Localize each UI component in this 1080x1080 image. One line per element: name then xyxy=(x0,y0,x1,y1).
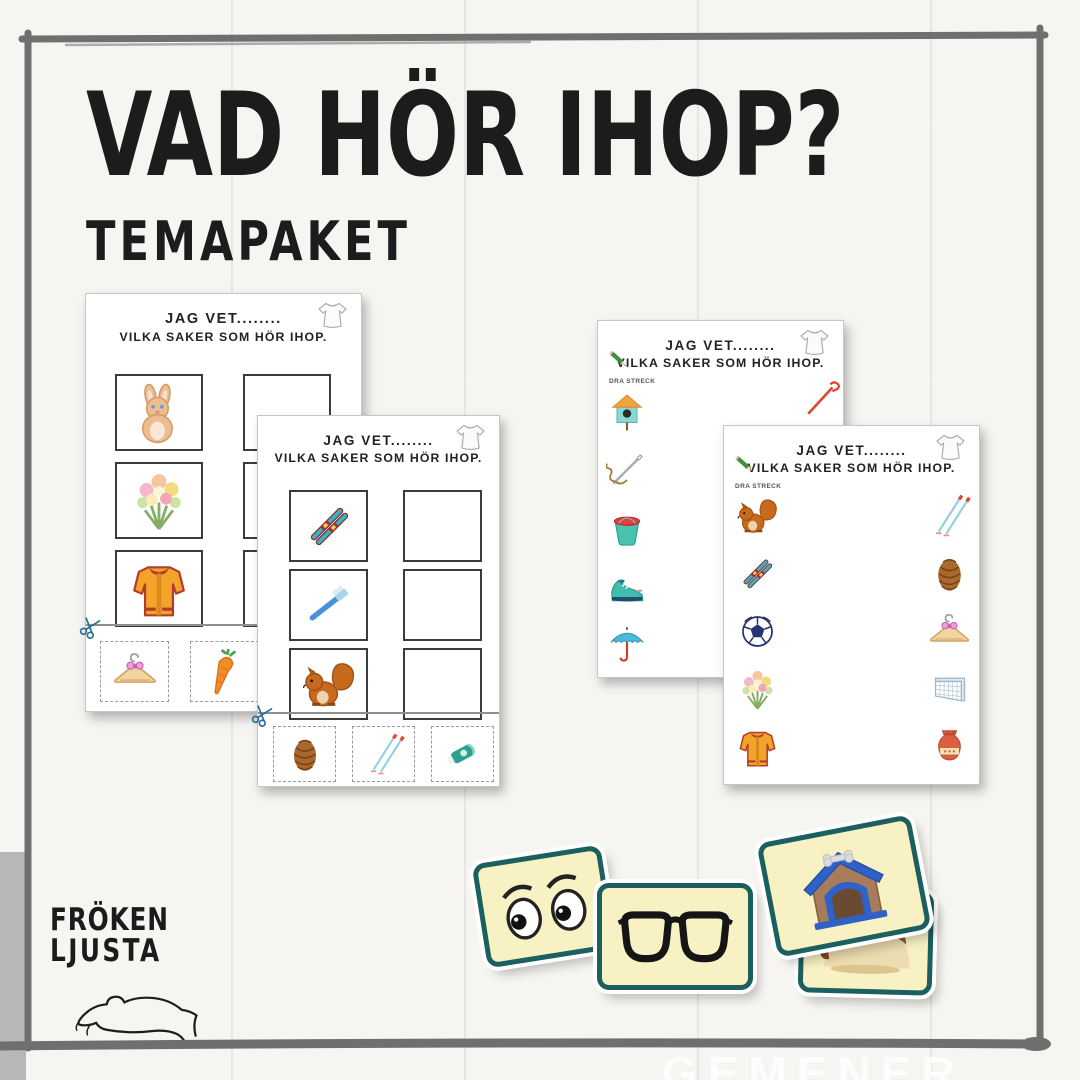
sneaker-image-slot xyxy=(606,565,648,607)
toothpaste-icon xyxy=(442,733,484,775)
logo-line-2: LJUSTA xyxy=(50,936,178,967)
hanger-icon xyxy=(928,610,971,653)
soccer-ball-icon xyxy=(736,610,779,653)
left-picture-column xyxy=(736,494,779,769)
cut-and-paste-worksheet-2: JAG VET........VILKA SAKER SOM HÖR IHOP. xyxy=(257,415,500,787)
flower-bouquet-box xyxy=(115,462,203,539)
flower-bouquet-icon xyxy=(736,668,779,711)
bucket-image-slot xyxy=(606,507,648,549)
pinecone-cutout-box xyxy=(273,726,336,782)
worksheet-instruction: DRA STRECK xyxy=(735,483,781,490)
flower-bouquet-icon xyxy=(128,470,190,532)
soccer-goal-icon xyxy=(928,668,971,711)
cut-here-line xyxy=(258,712,499,714)
glasses-icon xyxy=(614,897,737,977)
squirrel-box xyxy=(289,648,368,720)
froken-ljusta-logo: FRÖKEN LJUSTA xyxy=(50,905,210,967)
shirt-icon xyxy=(314,301,351,329)
ski-poles-cutout-box xyxy=(352,726,415,782)
vase-icon xyxy=(928,726,971,769)
page-edge-shadow xyxy=(0,852,26,1080)
needle-and-thread-image-slot xyxy=(606,449,648,491)
cutout-row xyxy=(273,726,494,782)
worksheet-heading-line2: VILKA SAKER SOM HÖR IHOP. xyxy=(724,461,979,475)
poster-subtitle: TEMAPAKET xyxy=(86,210,411,273)
ski-poles-image-slot xyxy=(928,494,971,537)
skis-icon xyxy=(301,498,357,554)
worksheet-header: JAG VET........VILKA SAKER SOM HÖR IHOP. xyxy=(86,294,361,344)
poster: VAD HÖR IHOP? TEMAPAKET JAG VET........V… xyxy=(0,0,1080,1080)
empty-answer-box xyxy=(403,490,482,562)
flower-bouquet-image-slot xyxy=(736,668,779,711)
empty-answer-box xyxy=(403,648,482,720)
jacket-icon xyxy=(736,726,779,769)
skis-image-slot xyxy=(736,552,779,595)
worksheet-header: JAG VET........VILKA SAKER SOM HÖR IHOP. xyxy=(258,416,499,465)
toothbrush-icon xyxy=(301,577,357,633)
open-hand-icon xyxy=(54,971,204,1045)
picture-column xyxy=(289,490,368,720)
squirrel-icon xyxy=(736,494,779,537)
needle-and-thread-icon xyxy=(606,449,648,491)
hanger-icon xyxy=(112,649,158,695)
toothpaste-cutout-box xyxy=(431,726,494,782)
jacket-icon xyxy=(128,558,190,620)
worksheet-heading-line2: VILKA SAKER SOM HÖR IHOP. xyxy=(86,330,361,344)
hanger-image-slot xyxy=(928,610,971,653)
logo-line-1: FRÖKEN xyxy=(50,905,178,936)
left-picture-column xyxy=(606,391,648,665)
rake-image-slot xyxy=(803,377,845,419)
umbrella-image-slot xyxy=(606,623,648,665)
pinecone-icon xyxy=(284,733,326,775)
watermark-text: GEMENER xyxy=(662,1046,965,1080)
right-picture-column xyxy=(803,377,845,419)
carrot-cutout-box xyxy=(190,641,259,702)
pencil-icon xyxy=(607,348,631,372)
eyes-card xyxy=(472,844,617,968)
scissors-icon xyxy=(76,612,104,640)
toothbrush-box xyxy=(289,569,368,641)
ski-poles-icon xyxy=(928,494,971,537)
soccer-goal-image-slot xyxy=(928,668,971,711)
vase-image-slot xyxy=(928,726,971,769)
worksheet-header: JAG VET........VILKA SAKER SOM HÖR IHOP.… xyxy=(724,426,979,475)
jacket-box xyxy=(115,550,203,627)
pencil-icon xyxy=(733,453,757,477)
doghouse-icon xyxy=(776,832,913,941)
soccer-ball-image-slot xyxy=(736,610,779,653)
picture-column xyxy=(115,374,203,627)
umbrella-icon xyxy=(606,623,648,665)
poster-title: VAD HÖR IHOP? xyxy=(86,78,844,194)
worksheet-header: JAG VET........VILKA SAKER SOM HÖR IHOP.… xyxy=(598,321,843,370)
skis-icon xyxy=(736,552,779,595)
squirrel-image-slot xyxy=(736,494,779,537)
birdhouse-icon xyxy=(606,391,648,433)
eyes-icon xyxy=(488,860,600,953)
skis-box xyxy=(289,490,368,562)
cutout-row xyxy=(100,641,259,702)
rabbit-box xyxy=(115,374,203,451)
draw-lines-worksheet-2: JAG VET........VILKA SAKER SOM HÖR IHOP.… xyxy=(723,425,980,785)
jacket-image-slot xyxy=(736,726,779,769)
shirt-icon xyxy=(452,423,489,451)
carrot-icon xyxy=(202,649,248,695)
worksheet-heading-line2: VILKA SAKER SOM HÖR IHOP. xyxy=(598,356,843,370)
answer-column xyxy=(403,490,482,720)
shirt-icon xyxy=(796,328,833,356)
rabbit-icon xyxy=(128,382,190,444)
shirt-icon xyxy=(932,433,969,461)
empty-answer-box xyxy=(403,569,482,641)
worksheet-instruction: DRA STRECK xyxy=(609,378,655,385)
ski-poles-icon xyxy=(363,733,405,775)
bucket-icon xyxy=(606,507,648,549)
rake-icon xyxy=(803,377,845,419)
birdhouse-image-slot xyxy=(606,391,648,433)
pinecone-image-slot xyxy=(928,552,971,595)
right-picture-column xyxy=(928,494,971,769)
scissors-icon xyxy=(248,700,276,728)
sneaker-icon xyxy=(606,565,648,607)
hanger-cutout-box xyxy=(100,641,169,702)
worksheet-heading-line2: VILKA SAKER SOM HÖR IHOP. xyxy=(258,451,499,465)
pinecone-icon xyxy=(928,552,971,595)
glasses-card xyxy=(597,883,753,990)
squirrel-icon xyxy=(301,656,357,712)
